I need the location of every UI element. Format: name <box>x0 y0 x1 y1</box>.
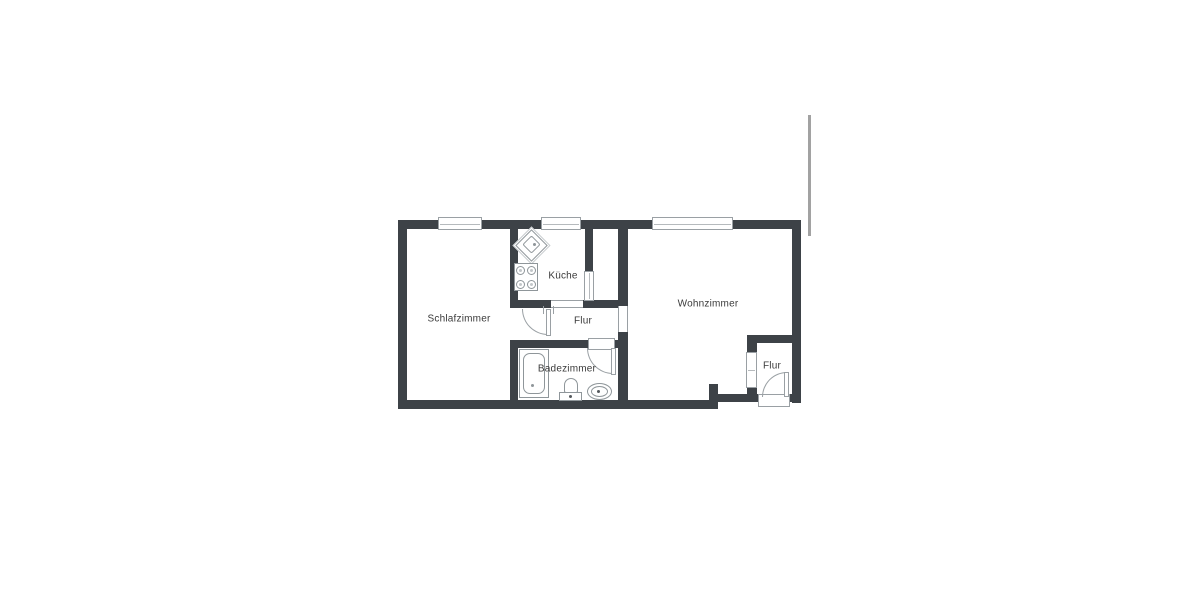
passage-kitchen-hall <box>551 300 583 308</box>
sink-faucet-dot <box>533 243 536 246</box>
window-entry-hall-icon <box>746 352 757 388</box>
wall-bathroom-top <box>510 340 589 348</box>
door-jamb <box>553 306 554 314</box>
door-arc-hall <box>522 309 548 335</box>
window-kitchen-icon <box>541 217 581 230</box>
passage-hall-livingroom <box>618 306 628 332</box>
stove-burner-icon <box>527 280 536 289</box>
wall-outer-bottom <box>398 400 718 409</box>
stove-burner-icon <box>516 266 525 275</box>
window-shaft-icon <box>584 271 594 301</box>
toilet-dot <box>597 390 600 393</box>
wall-kitchen-hall <box>510 300 551 308</box>
floor-plan-page: Schlafzimmer Küche Flur Wohnzimmer Badez… <box>0 0 1200 600</box>
wall-bathroom-left <box>510 340 518 409</box>
room-label-schlafzimmer: Schlafzimmer <box>428 314 491 325</box>
door-leaf-entrance <box>784 372 789 397</box>
washbasin-icon <box>564 378 578 393</box>
wall-entry-hall-left-lower <box>747 388 757 402</box>
room-label-kueche: Küche <box>548 271 577 282</box>
wall-livingroom-left-upper <box>618 228 628 306</box>
scrollbar-artifact-line <box>808 115 811 236</box>
room-label-badezimmer: Badezimmer <box>538 364 596 375</box>
room-label-flur-eingang: Flur <box>763 361 781 372</box>
stove-burner-icon <box>516 280 525 289</box>
wall-outer-left <box>398 220 407 409</box>
bathtub-drain-dot <box>531 384 534 387</box>
room-label-flur: Flur <box>574 316 592 327</box>
window-bedroom-icon <box>438 217 482 230</box>
door-leaf-hall <box>546 309 551 336</box>
wall-outer-right <box>792 220 801 403</box>
wall-entry-hall-top <box>747 335 801 343</box>
washbasin-dot <box>569 395 572 398</box>
window-livingroom-icon <box>652 217 733 230</box>
stove-burner-icon <box>527 266 536 275</box>
room-label-wohnzimmer: Wohnzimmer <box>678 299 739 310</box>
door-leaf-bathroom <box>611 348 616 375</box>
wall-kitchen-right <box>585 228 593 273</box>
wall-bathroom-top-right <box>615 340 628 348</box>
